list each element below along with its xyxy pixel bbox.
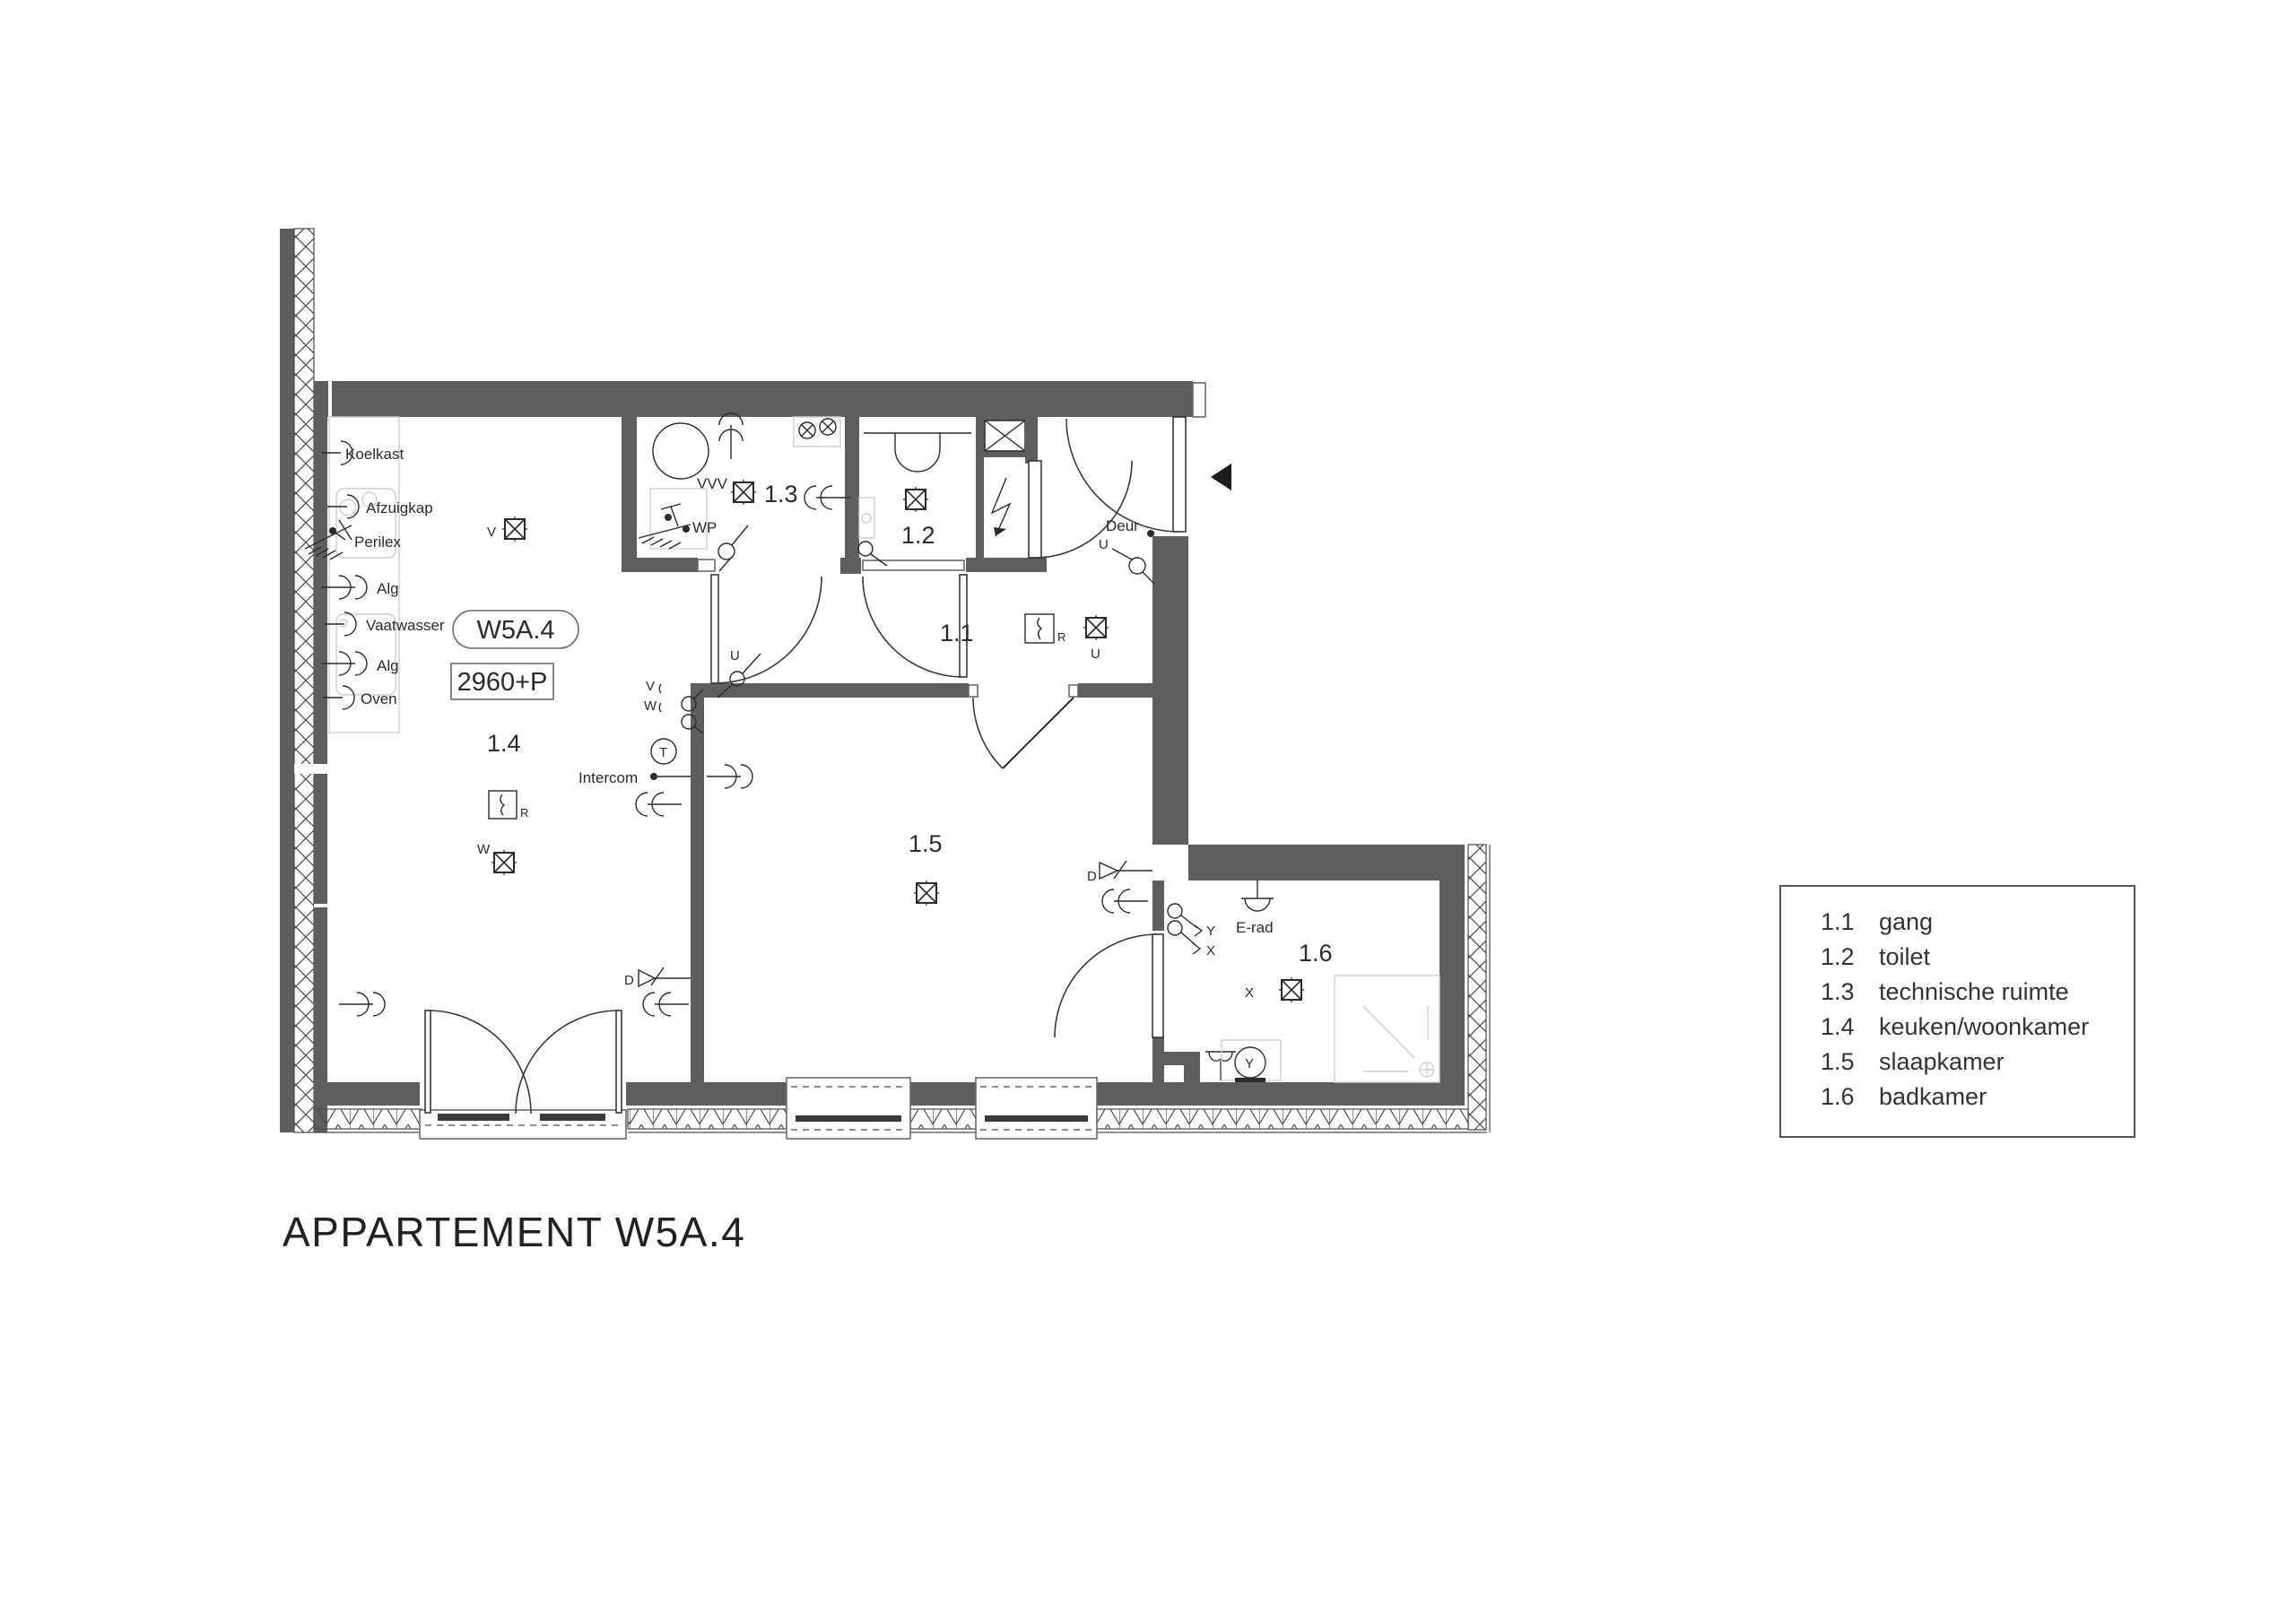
legend-name-6: badkamer	[1879, 1083, 1987, 1110]
bedroom-door-leaf	[1003, 698, 1074, 768]
label-oven: Oven	[361, 690, 397, 707]
dimmer-symbol-living: D	[624, 967, 691, 988]
room-label-toilet: 1.2	[901, 522, 935, 549]
svg-text:V: V	[646, 679, 655, 694]
shower	[1335, 976, 1439, 1082]
svg-text:D: D	[1087, 869, 1097, 884]
room-label-bathroom: 1.6	[1299, 940, 1333, 967]
legend-no-3: 1.3	[1821, 978, 1855, 1005]
kitchen-counter	[329, 417, 399, 733]
level-badge: 2960+P	[457, 668, 548, 697]
vvv-label: VVV	[697, 475, 728, 492]
hall-thermostat: R	[1025, 614, 1065, 644]
svg-text:U: U	[1099, 537, 1109, 552]
bathroom: E-rad 1.6 Y X X Y	[1168, 880, 1439, 1082]
legend-name-3: technische ruimte	[1879, 978, 2069, 1005]
svg-text:D: D	[624, 973, 634, 988]
entry-switch: U	[1099, 537, 1155, 585]
svg-text:R: R	[1057, 630, 1065, 644]
legend-no-4: 1.4	[1821, 1013, 1855, 1040]
erad-symbol: E-rad	[1236, 880, 1274, 936]
legend-no-5: 1.5	[1821, 1048, 1855, 1075]
legend-no-1: 1.1	[1821, 908, 1855, 935]
label-alg-1: Alg	[377, 580, 399, 597]
tech-room-door-leaf	[711, 575, 718, 683]
label-koelkast: Koelkast	[345, 446, 404, 463]
vent-v-label: V	[487, 525, 496, 540]
french-door-left-leaf	[425, 1010, 430, 1113]
washing-machine: Y	[1222, 1040, 1281, 1082]
floorplan-drawing: Koelkast Afzuigkap Perilex Alg Vaatwasse…	[0, 0, 2296, 1622]
deur-label: Deur	[1106, 517, 1139, 534]
intercom-unit: T Intercom	[578, 739, 691, 786]
svg-text:WP: WP	[692, 519, 717, 536]
bedroom: 1.5 D	[909, 830, 1152, 913]
tech-room: VVV 1.3 WP	[639, 413, 850, 571]
legend-no-2: 1.2	[1821, 943, 1855, 970]
dimmer-symbol-bedroom: D	[1087, 861, 1152, 884]
svg-text:T: T	[659, 745, 667, 760]
room-label-hall: 1.1	[940, 620, 974, 646]
bolt-arrowhead	[994, 527, 1006, 536]
bath-washbasin	[1205, 1052, 1236, 1080]
x-light-label: X	[1245, 985, 1254, 1001]
svg-text:X: X	[1206, 943, 1215, 958]
entrance-arrow-icon	[1211, 464, 1231, 490]
bathroom-door-leaf	[1152, 934, 1163, 1037]
page-title: APPARTEMENT W5A.4	[283, 1209, 745, 1255]
floorplan-page: Koelkast Afzuigkap Perilex Alg Vaatwasse…	[0, 0, 2296, 1622]
wp-symbol: WP	[639, 489, 717, 549]
tech-washbasin	[794, 417, 840, 447]
legend-name-1: gang	[1879, 908, 1933, 935]
meter-closet-door-leaf	[1029, 461, 1041, 558]
french-door-right-leaf	[616, 1010, 622, 1113]
thermostat-symbol: R	[489, 791, 528, 820]
toilet-room: 1.2	[858, 433, 971, 566]
toilet-washbasin	[859, 498, 874, 538]
label-alg-2: Alg	[377, 657, 399, 674]
legend-no-6: 1.6	[1821, 1083, 1855, 1110]
label-afzuigkap: Afzuigkap	[366, 499, 433, 516]
svg-text:W: W	[644, 698, 657, 714]
svg-text:R: R	[520, 806, 528, 820]
legend-name-4: keuken/woonkamer	[1879, 1013, 2089, 1040]
svg-text:U: U	[730, 648, 740, 664]
room-label-bedroom: 1.5	[909, 830, 943, 857]
room-label-tech: 1.3	[764, 481, 798, 507]
legend-name-5: slaapkamer	[1879, 1048, 2005, 1075]
door-side-sockets: Y X	[1168, 904, 1215, 958]
entry-door-leaf	[1173, 417, 1186, 532]
meter-closet	[992, 478, 1010, 536]
legend-name-2: toilet	[1879, 943, 1931, 970]
intercom-label: Intercom	[578, 769, 638, 786]
w-label: W	[477, 842, 491, 857]
label-vaatwasser: Vaatwasser	[366, 617, 445, 634]
erad-label: E-rad	[1236, 919, 1274, 936]
svg-text:Y: Y	[1245, 1056, 1254, 1071]
room-label-kitchen: 1.4	[487, 730, 521, 757]
tech-door-switch	[718, 525, 748, 571]
legend: 1.1 gang 1.2 toilet 1.3 technische ruimt…	[1780, 886, 2135, 1137]
unit-badge: W5A.4	[476, 616, 554, 645]
label-perilex: Perilex	[354, 533, 401, 551]
doors	[711, 417, 1186, 1037]
svg-text:Y: Y	[1206, 924, 1215, 939]
hall-u-label: U	[1091, 646, 1100, 662]
toilet-fixture	[895, 433, 940, 472]
